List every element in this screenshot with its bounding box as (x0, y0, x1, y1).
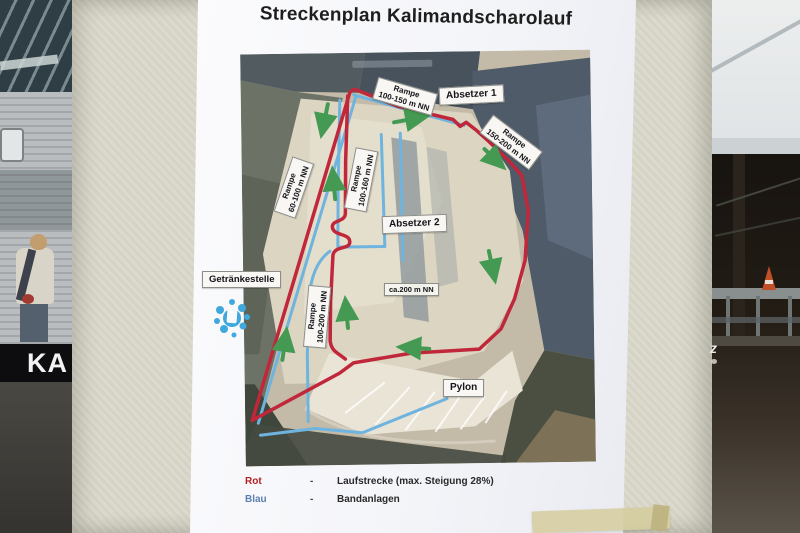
person-bag (22, 294, 34, 304)
tape-fold (650, 504, 669, 532)
banner-sign: KA (0, 344, 72, 382)
label-absetzer-2: Absetzer 2 (382, 214, 447, 234)
legend-row-blau: Blau - Bandanlagen (245, 494, 575, 505)
partial-sign-letter: z (710, 340, 717, 356)
traffic-cone (762, 266, 776, 290)
wall-shadow-band (0, 170, 72, 230)
water-splash-icon (212, 296, 252, 338)
legend-separator: - (310, 494, 337, 505)
railing-post (726, 296, 730, 336)
railing-post (756, 296, 760, 336)
person-legs (20, 304, 48, 342)
traffic-cone-band (765, 280, 773, 284)
structural-post (733, 154, 745, 344)
railing-lower (712, 317, 800, 323)
label-ca-200-m-nn: ca.200 m NN (384, 283, 439, 296)
legend-row-rot: Rot - Laufstrecke (max. Steigung 28%) (245, 476, 575, 487)
map-legend: Rot - Laufstrecke (max. Steigung 28%) Bl… (245, 476, 575, 512)
legend-desc-blau: Bandanlagen (337, 494, 400, 505)
sky (712, 0, 800, 152)
sign-fragment (711, 359, 717, 364)
legend-term-rot: Rot (245, 476, 310, 487)
poster-paper: Streckenplan Kalimandscharolauf (190, 0, 636, 533)
person-head (30, 234, 47, 250)
platform-edge (712, 336, 800, 346)
label-absetzer-1: Absetzer 1 (439, 84, 504, 105)
legend-separator: - (310, 476, 337, 487)
photo-scene: KA z Streckenplan Kalimandscharolauf (0, 0, 800, 533)
ground-left (0, 382, 72, 533)
label-getraenkestelle: Getränkestelle (202, 271, 281, 288)
railing-post (788, 296, 792, 336)
legend-desc-rot: Laufstrecke (max. Steigung 28%) (337, 476, 494, 487)
banner-text: KA (27, 348, 68, 378)
legend-term-blau: Blau (245, 494, 310, 505)
window (0, 128, 24, 162)
label-pylon: Pylon (443, 379, 484, 397)
poster-title: Streckenplan Kalimandscharolauf (226, 3, 606, 32)
bystander-person (8, 232, 66, 342)
background-building-left: KA (0, 0, 72, 533)
